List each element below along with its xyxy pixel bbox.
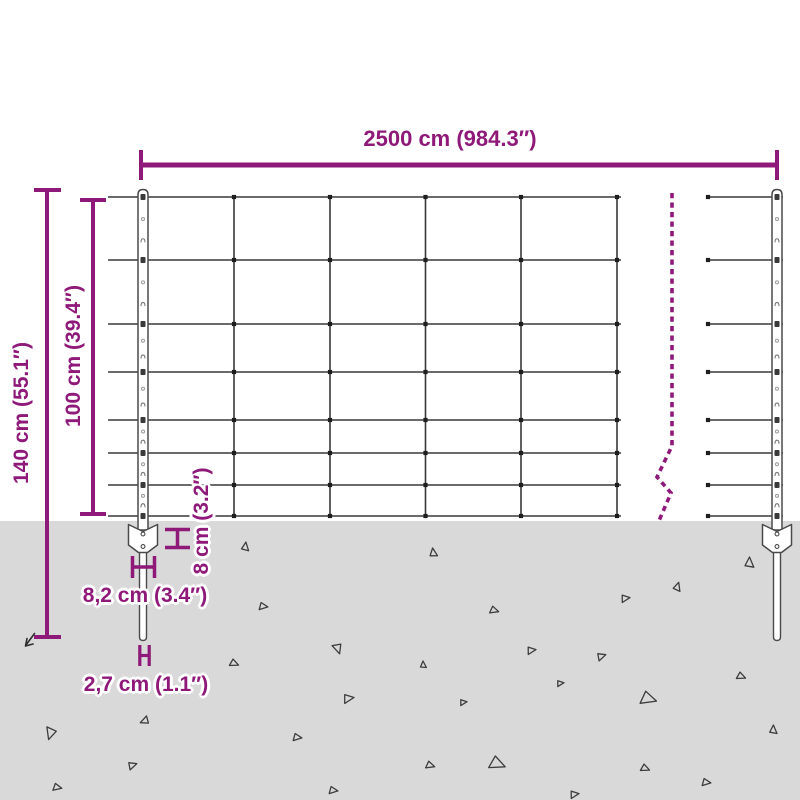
- fence-dimension-diagram: 2500 cm (984.3″) 140 cm (55.1″) 100 cm (…: [0, 0, 800, 800]
- dim-label-mesh-height: 100 cm (39.4″): [62, 196, 86, 516]
- dim-label-anchor-plate-width: 8,2 cm (3.4″): [5, 584, 285, 608]
- dim-label-total-width: 2500 cm (984.3″): [132, 127, 768, 151]
- dim-label-total-height: 140 cm (55.1″): [10, 253, 34, 573]
- dim-label-spike-width: 2,7 cm (1.1″): [6, 673, 286, 697]
